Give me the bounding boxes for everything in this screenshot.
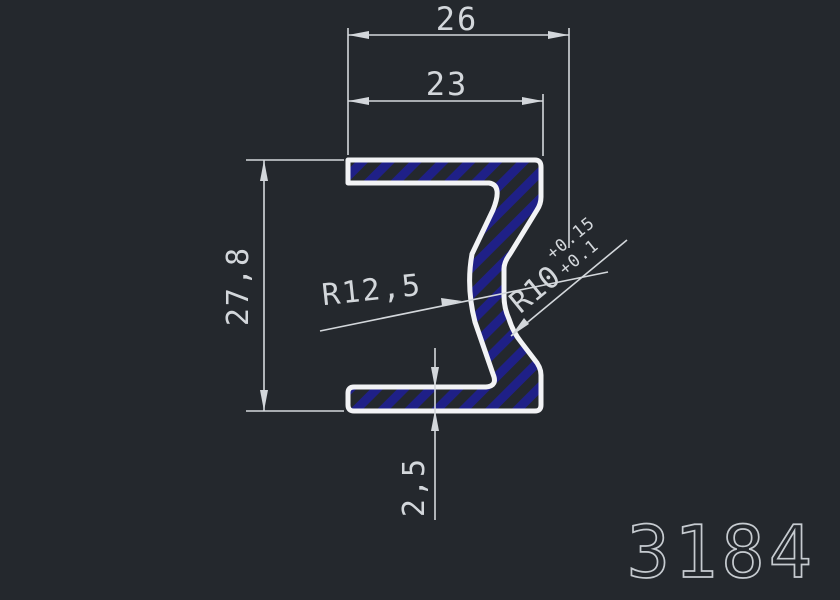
dim-label-overall-height: 27,8 <box>224 246 254 326</box>
dim-label-opening-width: 23 <box>391 68 503 100</box>
cad-drawing-canvas: 26 23 27,8 2,5 R12,5 R10 +0.15 +0.1 3184 <box>0 0 840 600</box>
arrowhead <box>260 390 268 411</box>
dimension-flange-thickness <box>431 348 439 520</box>
dim-label-overall-width: 26 <box>400 3 514 35</box>
arrowhead <box>260 160 268 181</box>
part-number: 3184 <box>627 516 816 588</box>
dimension-opening-width <box>348 94 543 156</box>
arrowhead <box>522 97 543 105</box>
arrowhead <box>348 97 369 105</box>
arrowhead <box>548 31 569 39</box>
dim-label-flange-thickness: 2,5 <box>400 457 430 517</box>
arrowhead <box>348 31 369 39</box>
